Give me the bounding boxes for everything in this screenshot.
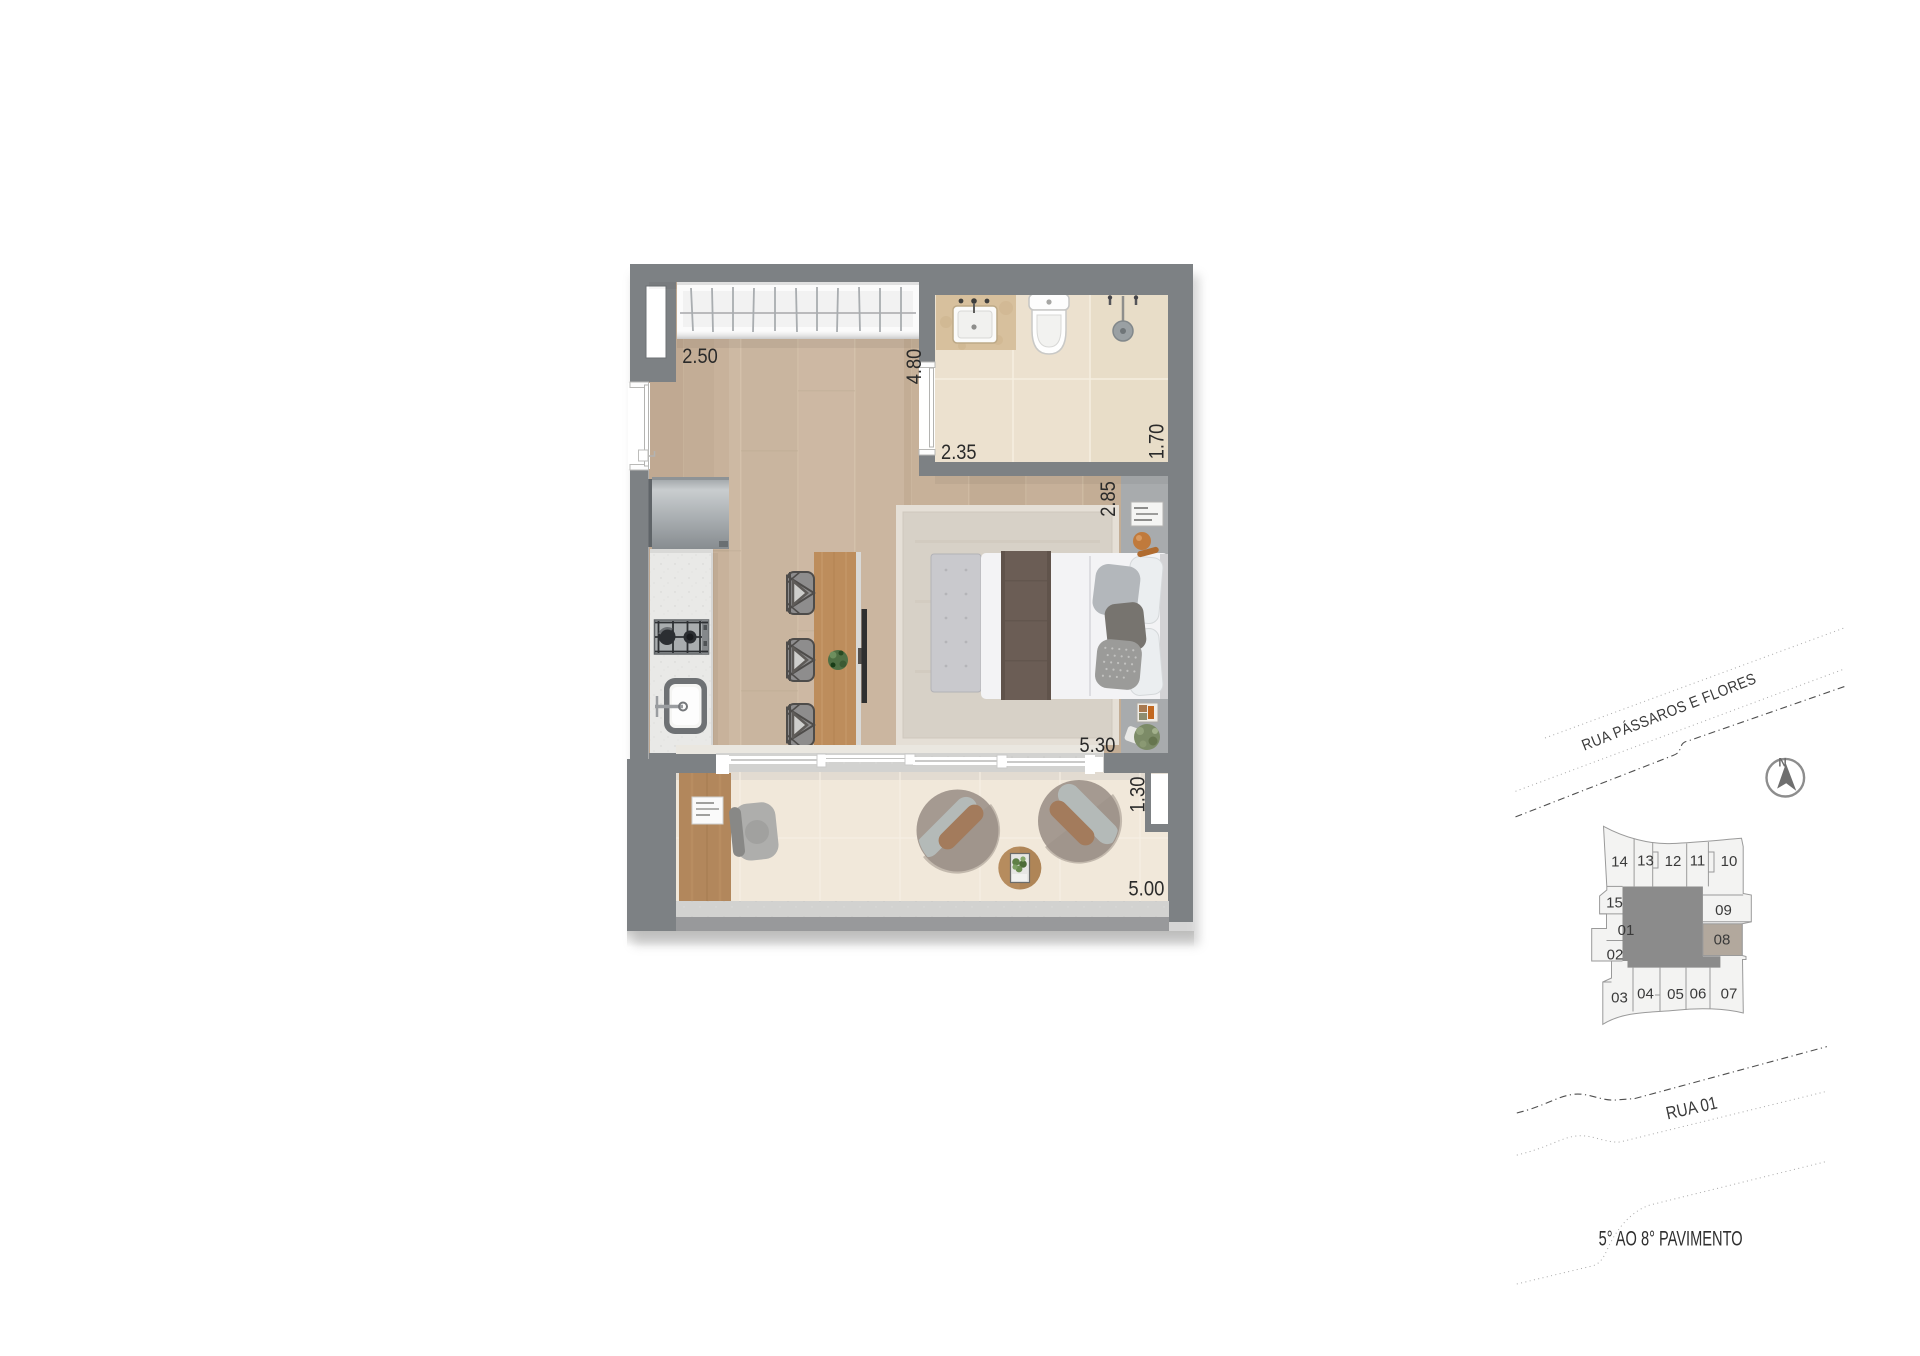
svg-text:10: 10	[1721, 853, 1738, 870]
svg-text:07: 07	[1721, 986, 1738, 1003]
svg-text:RUA 01: RUA 01	[1664, 1093, 1719, 1124]
svg-text:02: 02	[1607, 947, 1624, 964]
svg-text:06: 06	[1690, 986, 1707, 1003]
svg-text:2.85: 2.85	[1096, 481, 1120, 517]
svg-text:03: 03	[1611, 990, 1628, 1007]
svg-text:01: 01	[1618, 922, 1635, 939]
svg-text:1.70: 1.70	[1145, 424, 1169, 460]
svg-text:1.30: 1.30	[1125, 776, 1149, 812]
svg-text:5.00: 5.00	[1128, 877, 1164, 901]
svg-text:4.80: 4.80	[902, 349, 926, 385]
svg-text:14: 14	[1611, 854, 1628, 871]
svg-text:08: 08	[1714, 932, 1731, 949]
svg-text:12: 12	[1665, 853, 1682, 870]
svg-text:RUA PÁSSAROS E FLORES: RUA PÁSSAROS E FLORES	[1580, 670, 1759, 754]
svg-text:2.35: 2.35	[941, 440, 977, 464]
svg-text:04: 04	[1637, 986, 1654, 1003]
svg-text:11: 11	[1690, 853, 1706, 870]
svg-text:15: 15	[1606, 895, 1623, 912]
svg-text:5° AO 8° PAVIMENTO: 5° AO 8° PAVIMENTO	[1599, 1228, 1743, 1251]
svg-text:5.30: 5.30	[1079, 733, 1115, 757]
svg-text:2.50: 2.50	[682, 344, 718, 368]
svg-text:05: 05	[1667, 986, 1684, 1003]
svg-text:13: 13	[1637, 853, 1654, 870]
svg-text:09: 09	[1715, 902, 1732, 919]
